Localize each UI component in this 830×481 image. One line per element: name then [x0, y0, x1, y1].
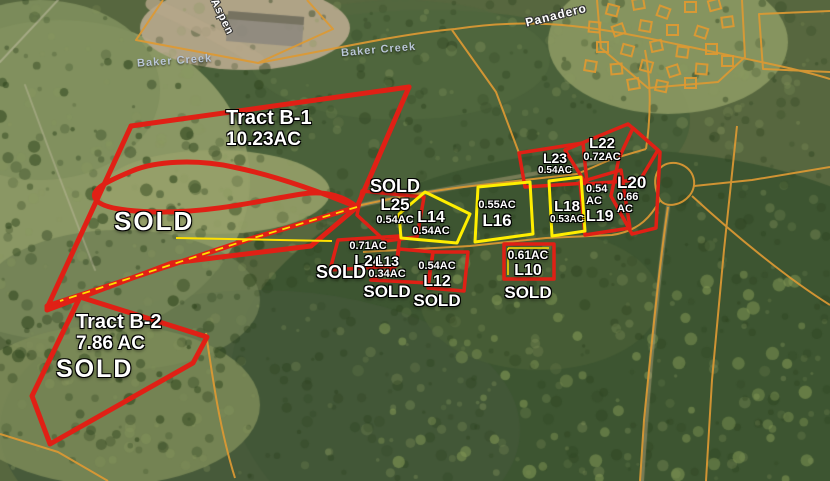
- tract-name: Tract B-1: [226, 108, 312, 130]
- lot-acreage: 0.54AC: [410, 261, 464, 273]
- tract-acreage: 7.86 AC: [76, 334, 162, 355]
- lot-acreage: 0.53AC: [547, 215, 587, 226]
- lot-label-L20: L20 0.66 AC: [617, 174, 646, 216]
- lot-L24-sold-badge: SOLD: [316, 263, 366, 282]
- lot-acreage-line2: AC: [617, 204, 646, 216]
- lot-label-L23: L23 0.54AC: [532, 151, 578, 177]
- label-layer: Tract B-1 10.23AC SOLD Tract B-2 7.86 AC…: [0, 0, 830, 481]
- sold-badge: SOLD: [362, 177, 428, 196]
- lot-acreage-line2: AC: [586, 196, 614, 208]
- tract-b2-sold-badge: SOLD: [56, 356, 133, 383]
- tract-b2-label: Tract B-2 7.86 AC: [76, 312, 162, 354]
- creek-label-west: Baker Creek: [137, 52, 213, 69]
- road-label-panadero: Panadero: [524, 1, 588, 30]
- lot-acreage: 0.61AC: [496, 249, 560, 262]
- lot-id: L22: [578, 136, 626, 152]
- lot-acreage: 0.71AC: [338, 241, 398, 253]
- lot-id: L18: [547, 199, 587, 215]
- lot-acreage: 0.54AC: [398, 226, 464, 238]
- tract-acreage: 10.23AC: [226, 130, 312, 151]
- sold-badge: SOLD: [496, 284, 560, 302]
- lot-id: L20: [617, 174, 646, 192]
- lot-id: L23: [532, 151, 578, 166]
- lot-label-L12: 0.54AC L12 SOLD: [410, 261, 464, 311]
- sold-badge: SOLD: [410, 292, 464, 310]
- lot-id: L12: [410, 273, 464, 290]
- map-canvas[interactable]: Tract B-1 10.23AC SOLD Tract B-2 7.86 AC…: [0, 0, 830, 481]
- lot-label-L16: 0.55AC L16: [466, 200, 528, 230]
- lot-id: L10: [496, 262, 560, 279]
- tract-name: Tract B-2: [76, 312, 162, 334]
- lot-label-L14: L14 0.54AC: [398, 209, 464, 238]
- lot-acreage: 0.72AC: [578, 152, 626, 164]
- lot-label-L18: L18 0.53AC: [547, 199, 587, 226]
- creek-label-east: Baker Creek: [341, 41, 417, 60]
- lot-acreage: 0.54AC: [532, 166, 578, 177]
- lot-label-L10: 0.61AC L10 SOLD: [496, 249, 560, 303]
- lot-label-L22: L22 0.72AC: [578, 136, 626, 164]
- tract-b1-label: Tract B-1 10.23AC: [226, 108, 312, 150]
- lot-acreage: 0.34AC: [362, 269, 412, 281]
- tract-b1-sold-badge: SOLD: [114, 207, 194, 235]
- sold-badge: SOLD: [362, 283, 412, 301]
- lot-id: L13: [362, 254, 412, 269]
- lot-id: L16: [466, 212, 528, 230]
- lot-id: L19: [586, 208, 614, 225]
- lot-label-L19: 0.54 AC L19: [586, 184, 614, 225]
- lot-id: L14: [398, 209, 464, 226]
- lot-label-L13: L13 0.34AC SOLD: [362, 254, 412, 301]
- road-label-aspen: Aspen: [208, 0, 236, 37]
